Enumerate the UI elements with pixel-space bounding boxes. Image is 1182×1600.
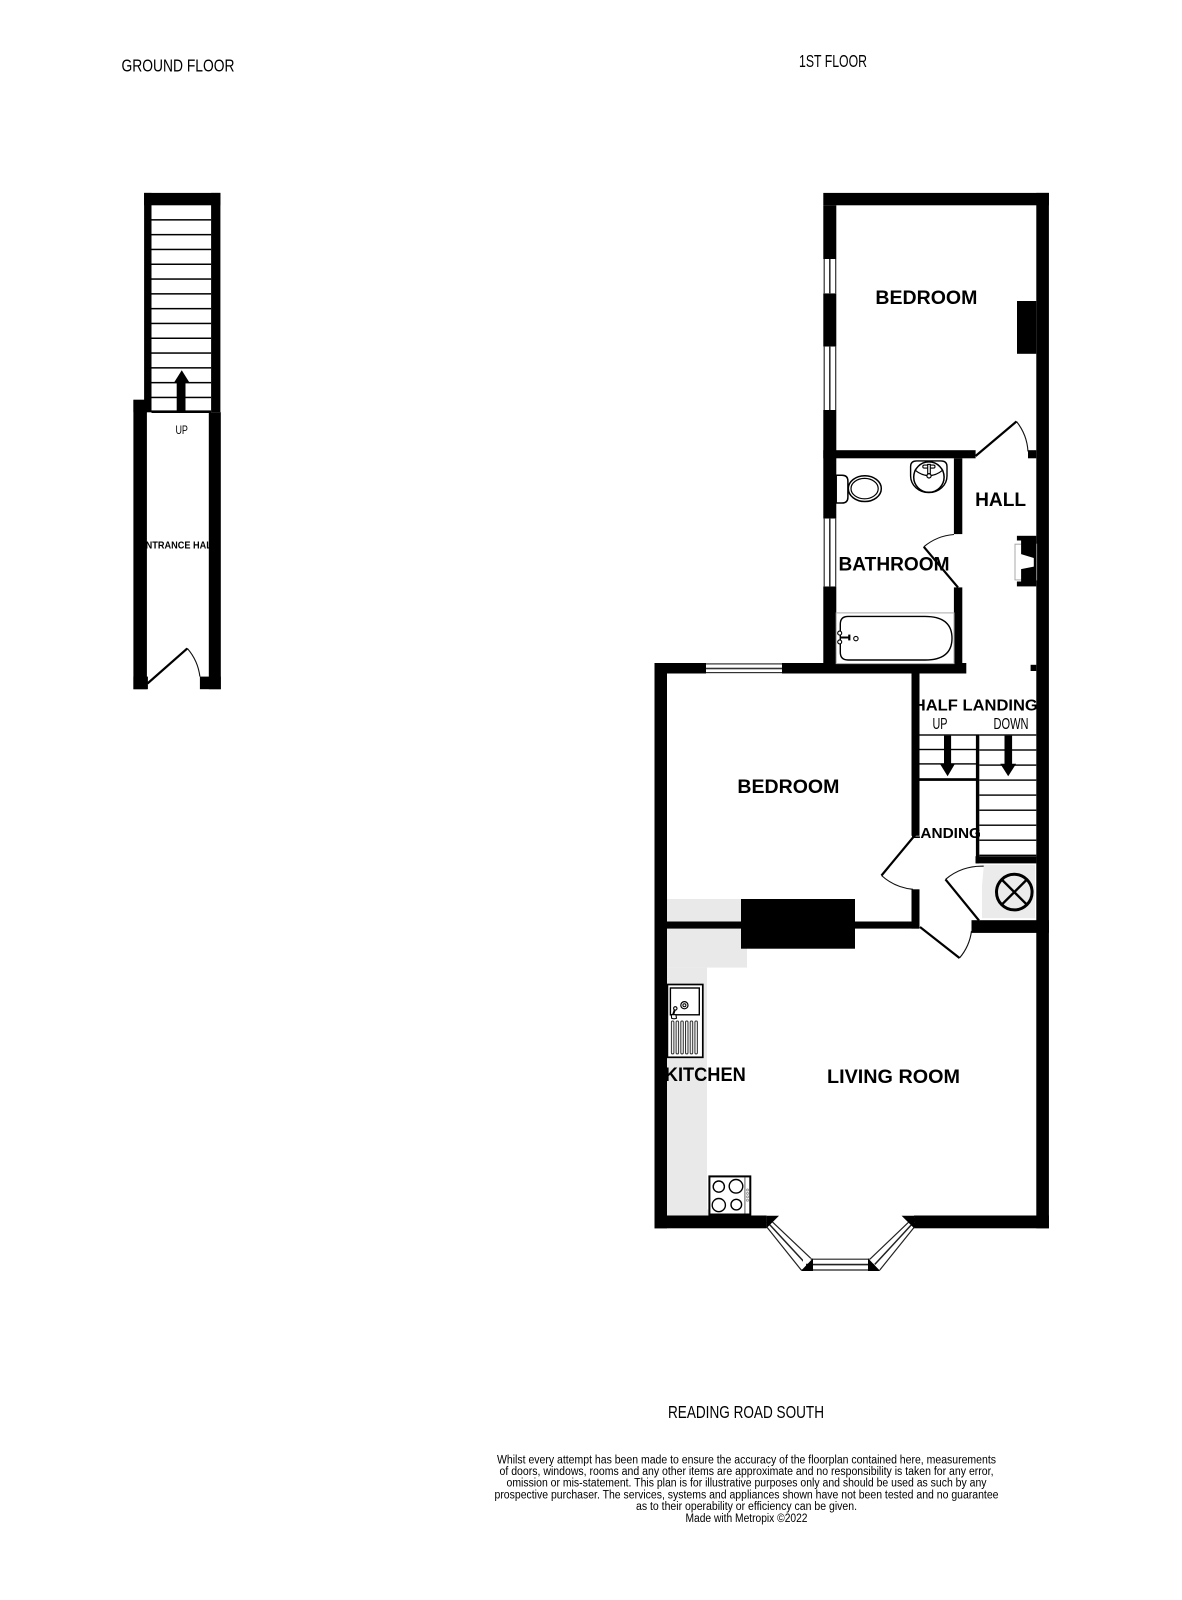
svg-text:KITCHEN: KITCHEN xyxy=(665,1065,746,1086)
svg-text:DOWN: DOWN xyxy=(994,716,1029,733)
svg-text:BEDROOM: BEDROOM xyxy=(737,777,839,798)
svg-text:UP: UP xyxy=(175,425,188,437)
svg-text:as to their operability or eff: as to their operability or efficiency ca… xyxy=(636,1501,857,1513)
svg-text:GROUND FLOOR: GROUND FLOOR xyxy=(122,56,235,76)
svg-text:UP: UP xyxy=(933,716,948,733)
svg-text:Made with Metropix ©2022: Made with Metropix ©2022 xyxy=(686,1513,808,1525)
svg-text:READING ROAD SOUTH: READING ROAD SOUTH xyxy=(668,1402,824,1422)
svg-text:Whilst every attempt has been: Whilst every attempt has been made to en… xyxy=(497,1454,996,1466)
svg-text:HALL: HALL xyxy=(975,490,1026,511)
svg-text:of doors, windows, rooms and a: of doors, windows, rooms and any other i… xyxy=(500,1466,994,1478)
svg-text:1ST FLOOR: 1ST FLOOR xyxy=(799,51,867,71)
svg-text:BATHROOM: BATHROOM xyxy=(839,555,950,576)
svg-text:ENTRANCE HALL: ENTRANCE HALL xyxy=(140,541,218,552)
svg-text:LIVING ROOM: LIVING ROOM xyxy=(827,1067,960,1088)
svg-text:HALF LANDING: HALF LANDING xyxy=(914,697,1038,714)
svg-text:LANDING: LANDING xyxy=(911,825,981,842)
svg-text:prospective purchaser. The ser: prospective purchaser. The services, sys… xyxy=(495,1489,999,1501)
svg-text:omission or mis-statement. Thi: omission or mis-statement. This plan is … xyxy=(507,1478,987,1490)
svg-text:BEDROOM: BEDROOM xyxy=(875,288,977,309)
